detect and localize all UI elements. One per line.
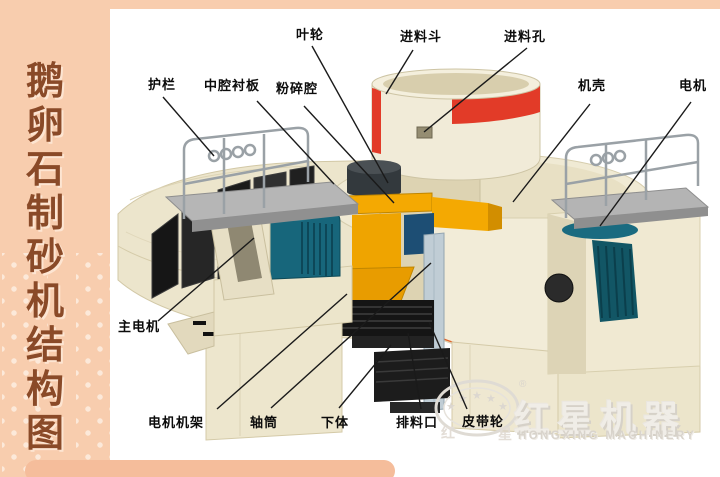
part-label-feed-hopper: 进料斗 [400, 26, 442, 45]
leader-middle-cavity-liner [257, 101, 334, 184]
leader-discharge-port [408, 333, 421, 409]
part-label-main-motor: 主电机 [118, 316, 160, 335]
part-label-middle-cavity-liner: 中腔衬板 [204, 75, 260, 94]
leader-casing [513, 104, 590, 202]
leader-crushing-chamber [304, 106, 394, 203]
leader-impeller [312, 46, 388, 183]
leader-belt-pulley [429, 322, 467, 409]
part-label-crushing-chamber: 粉碎腔 [276, 78, 318, 97]
part-label-shaft-sleeve: 轴筒 [250, 412, 278, 431]
part-label-lower-body: 下体 [321, 412, 349, 431]
leader-lower-body [339, 345, 391, 408]
leader-guardrail [163, 97, 214, 156]
leader-shaft-sleeve [271, 263, 431, 408]
part-label-belt-pulley: 皮带轮 [462, 411, 504, 430]
leader-main-motor [158, 238, 254, 321]
part-label-discharge-port: 排料口 [396, 412, 438, 431]
part-label-guardrail: 护栏 [148, 74, 176, 93]
leader-feed-hopper [386, 50, 413, 94]
part-label-impeller: 叶轮 [296, 24, 324, 43]
part-label-motor-frame: 电机机架 [148, 412, 204, 431]
part-label-motor: 电机 [679, 75, 707, 94]
leader-lines [0, 0, 720, 477]
diagram-canvas: 鹅 卵 石 制 砂 机 结 构 图 [0, 0, 720, 477]
part-label-casing: 机壳 [578, 75, 606, 94]
leader-motor [600, 102, 691, 226]
leader-feed-hole [424, 48, 527, 132]
leader-motor-frame [217, 294, 347, 409]
part-label-feed-hole: 进料孔 [504, 26, 546, 45]
